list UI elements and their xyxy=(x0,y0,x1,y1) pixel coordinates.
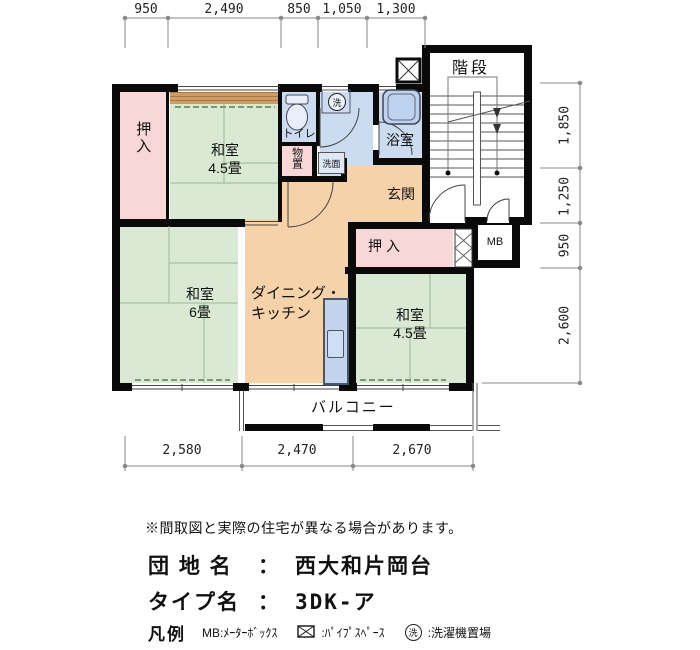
toilet-icon xyxy=(286,95,308,130)
plan-linework xyxy=(0,0,700,650)
dim-right-950: 950 xyxy=(559,215,574,275)
dim-right-2600: 2,600 xyxy=(559,295,574,355)
label-washitsu45-top-name: 和室 xyxy=(185,142,265,158)
label-washitsu45-b-name: 和室 xyxy=(370,307,450,323)
label-senmen: 洗面 xyxy=(318,152,345,174)
bathtub-icon xyxy=(383,90,420,124)
dim-bottom-2580: 2,580 xyxy=(152,444,212,459)
label-monooki: 物置 xyxy=(290,147,303,169)
dim-top-1050: 1,050 xyxy=(317,3,367,18)
label-kaidan: 階段 xyxy=(452,60,490,78)
label-washitsu6-name: 和室 xyxy=(170,286,230,302)
label-oshiire-top: 押入 xyxy=(134,121,151,155)
label-bath: 浴室 xyxy=(377,132,423,148)
dim-top-1300: 1,300 xyxy=(371,3,421,18)
label-dk-line1: ダイニング・ xyxy=(251,285,341,302)
laundry-symbol-text: 洗 xyxy=(332,96,341,109)
label-balcony: バルコニー xyxy=(311,399,396,416)
dim-bottom-2470: 2,470 xyxy=(267,444,327,459)
pipe-space-icon xyxy=(397,59,420,82)
label-washitsu6-size: 6畳 xyxy=(170,304,230,320)
label-washitsu45-b-size: 4.5畳 xyxy=(370,325,450,341)
door-arc-washroom xyxy=(320,108,359,147)
label-genkan: 玄関 xyxy=(387,186,415,202)
door-arc-neighbor xyxy=(487,199,509,221)
floorplan-page: 950 2,490 850 1,050 1,300 1,850 1,250 95… xyxy=(0,0,700,650)
label-oshiire-mid: 押入 xyxy=(368,238,404,254)
label-dk-line2: キッチン xyxy=(251,305,311,322)
dim-top-2490: 2,490 xyxy=(194,3,254,18)
door-arc-dk xyxy=(288,182,333,227)
label-toilet: トイレ xyxy=(281,128,317,141)
senmen-text: 洗面 xyxy=(322,157,340,170)
door-arc-entrance xyxy=(429,185,465,221)
pipe-space-strip xyxy=(455,229,472,267)
laundry-symbol-plan: 洗 xyxy=(328,93,346,111)
dim-bottom-2670: 2,670 xyxy=(382,444,442,459)
label-washitsu45-top-size: 4.5畳 xyxy=(185,160,265,176)
dim-top-850: 850 xyxy=(279,3,319,18)
dim-right-1850: 1,850 xyxy=(559,95,574,155)
stairs xyxy=(430,77,530,205)
dim-top-950: 950 xyxy=(126,3,166,18)
label-mb: MB xyxy=(478,236,512,249)
